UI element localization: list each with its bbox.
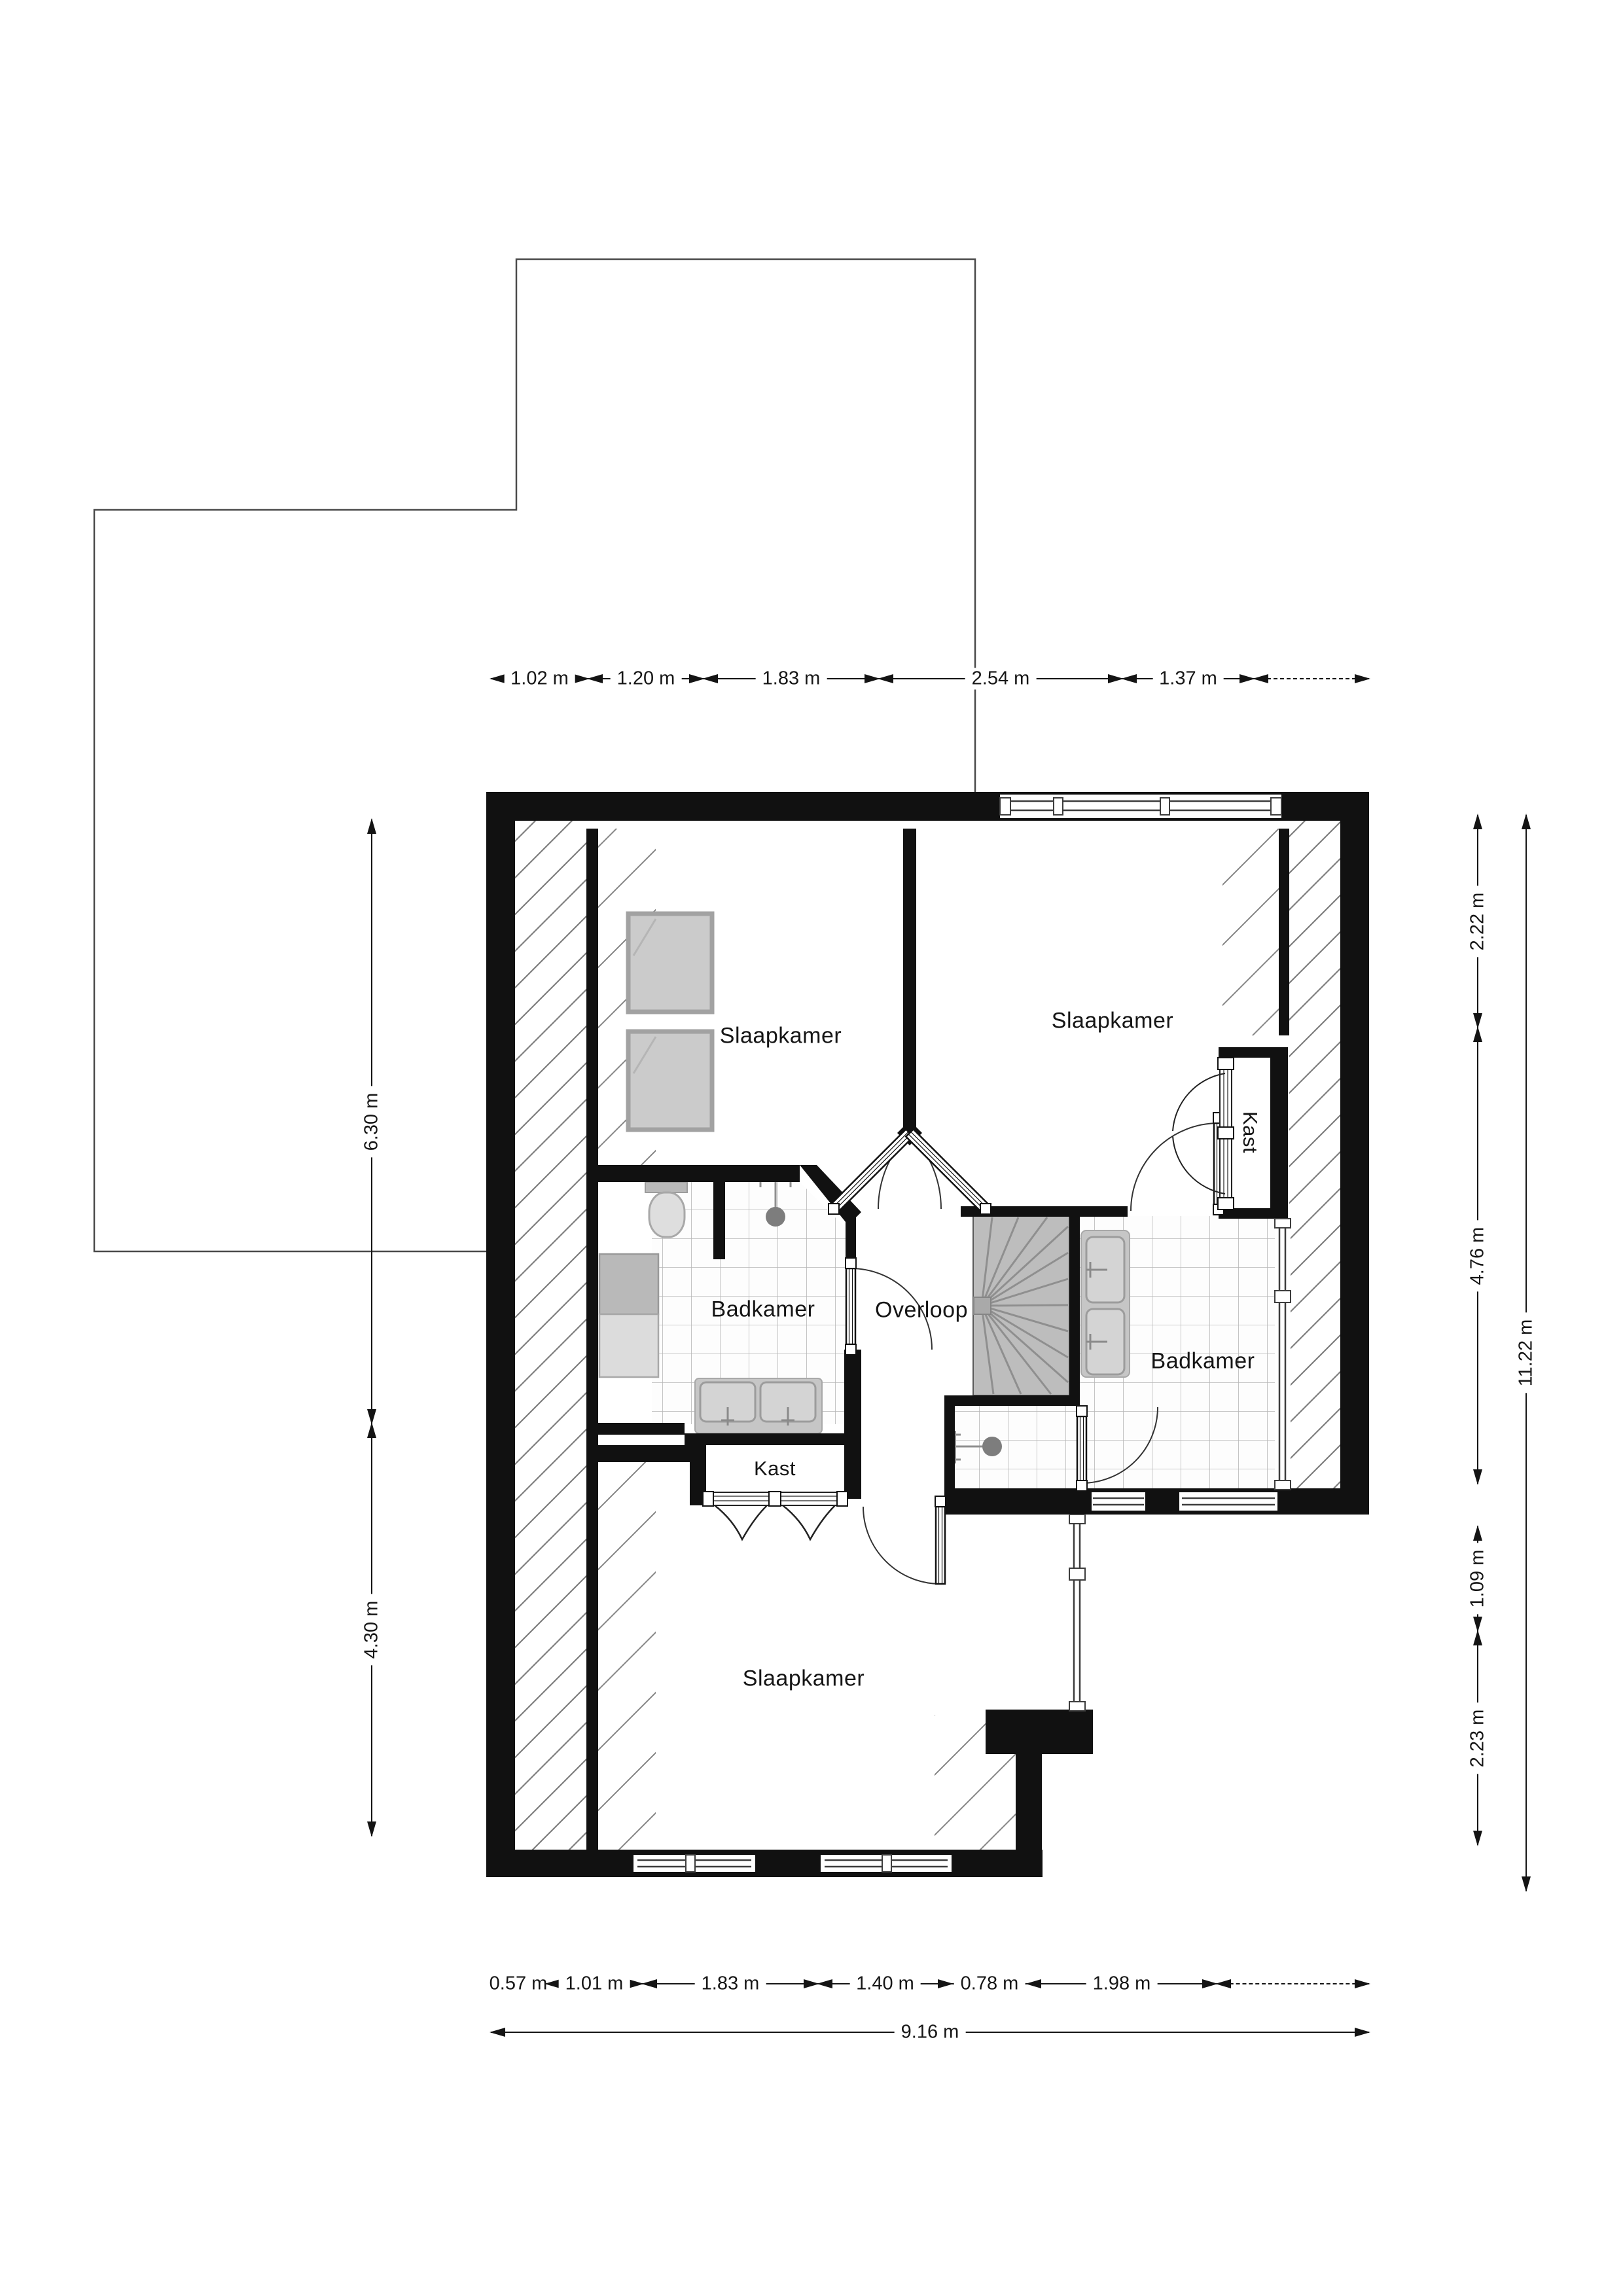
room-label-slaapkamer-topleft: Slaapkamer	[720, 1024, 842, 1049]
dim-right-3: 1.09 m	[1477, 1526, 1478, 1631]
bed-icon	[628, 914, 712, 1012]
dim-bottom-3: 1.83 m	[643, 1983, 818, 1984]
dim-top-3: 1.83 m	[704, 678, 879, 679]
dim-bottom-total: 9.16 m	[491, 2032, 1369, 2033]
dim-bottom-1: 0.57 m	[491, 1983, 546, 1984]
dim-right-total: 11.22 m	[1525, 815, 1527, 1891]
door-swing-icon	[1131, 1113, 1224, 1215]
dim-left-2: 4.30 m	[371, 1424, 372, 1836]
dim-bottom-6: 1.98 m	[1027, 1983, 1217, 1984]
window-icon	[1275, 1219, 1291, 1490]
dim-right-1: 2.22 m	[1477, 815, 1478, 1028]
spiral-stairs-icon	[973, 1216, 1069, 1395]
room-label-badkamer-right: Badkamer	[1151, 1349, 1255, 1374]
washer-dryer-icon	[599, 1254, 658, 1377]
folding-closet-door-icon	[703, 1492, 847, 1539]
dim-bottom-4: 1.40 m	[818, 1983, 952, 1984]
dim-right-4: 2.23 m	[1477, 1631, 1478, 1845]
room-label-kast-bottom: Kast	[754, 1457, 796, 1480]
room-label-slaapkamer-topright: Slaapkamer	[1052, 1009, 1173, 1034]
dim-top-6	[1254, 678, 1369, 679]
dim-bottom-2: 1.01 m	[546, 1983, 643, 1984]
folding-closet-door-icon	[1173, 1058, 1234, 1210]
dim-left-1: 6.30 m	[371, 819, 372, 1424]
dim-bottom-5: 0.78 m	[952, 1983, 1027, 1984]
room-label-badkamer-left: Badkamer	[711, 1297, 815, 1323]
room-label-slaapkamer-bottom: Slaapkamer	[743, 1666, 865, 1692]
dim-right-2: 4.76 m	[1477, 1028, 1478, 1484]
dim-top-5: 1.37 m	[1122, 678, 1254, 679]
room-label-overloop: Overloop	[875, 1298, 968, 1323]
room-label-kast-right: Kast	[1238, 1111, 1262, 1153]
dim-top-4: 2.54 m	[879, 678, 1122, 679]
floor-plan-page: Slaapkamer Slaapkamer Slaapkamer Badkame…	[0, 0, 1623, 2296]
floor-plan-svg	[0, 0, 1623, 2296]
door-swing-icon	[863, 1496, 946, 1584]
window-icon	[1000, 795, 1281, 818]
window-icon	[1069, 1515, 1085, 1711]
bed-icon	[628, 1031, 712, 1130]
window-icon	[1092, 1492, 1277, 1511]
dim-top-2: 1.20 m	[588, 678, 704, 679]
double-sink-icon	[695, 1378, 822, 1433]
dim-top-1: 1.02 m	[491, 678, 588, 679]
toilet-icon	[645, 1182, 687, 1237]
dim-bottom-7	[1217, 1983, 1369, 1984]
double-basin-icon	[1081, 1230, 1130, 1377]
